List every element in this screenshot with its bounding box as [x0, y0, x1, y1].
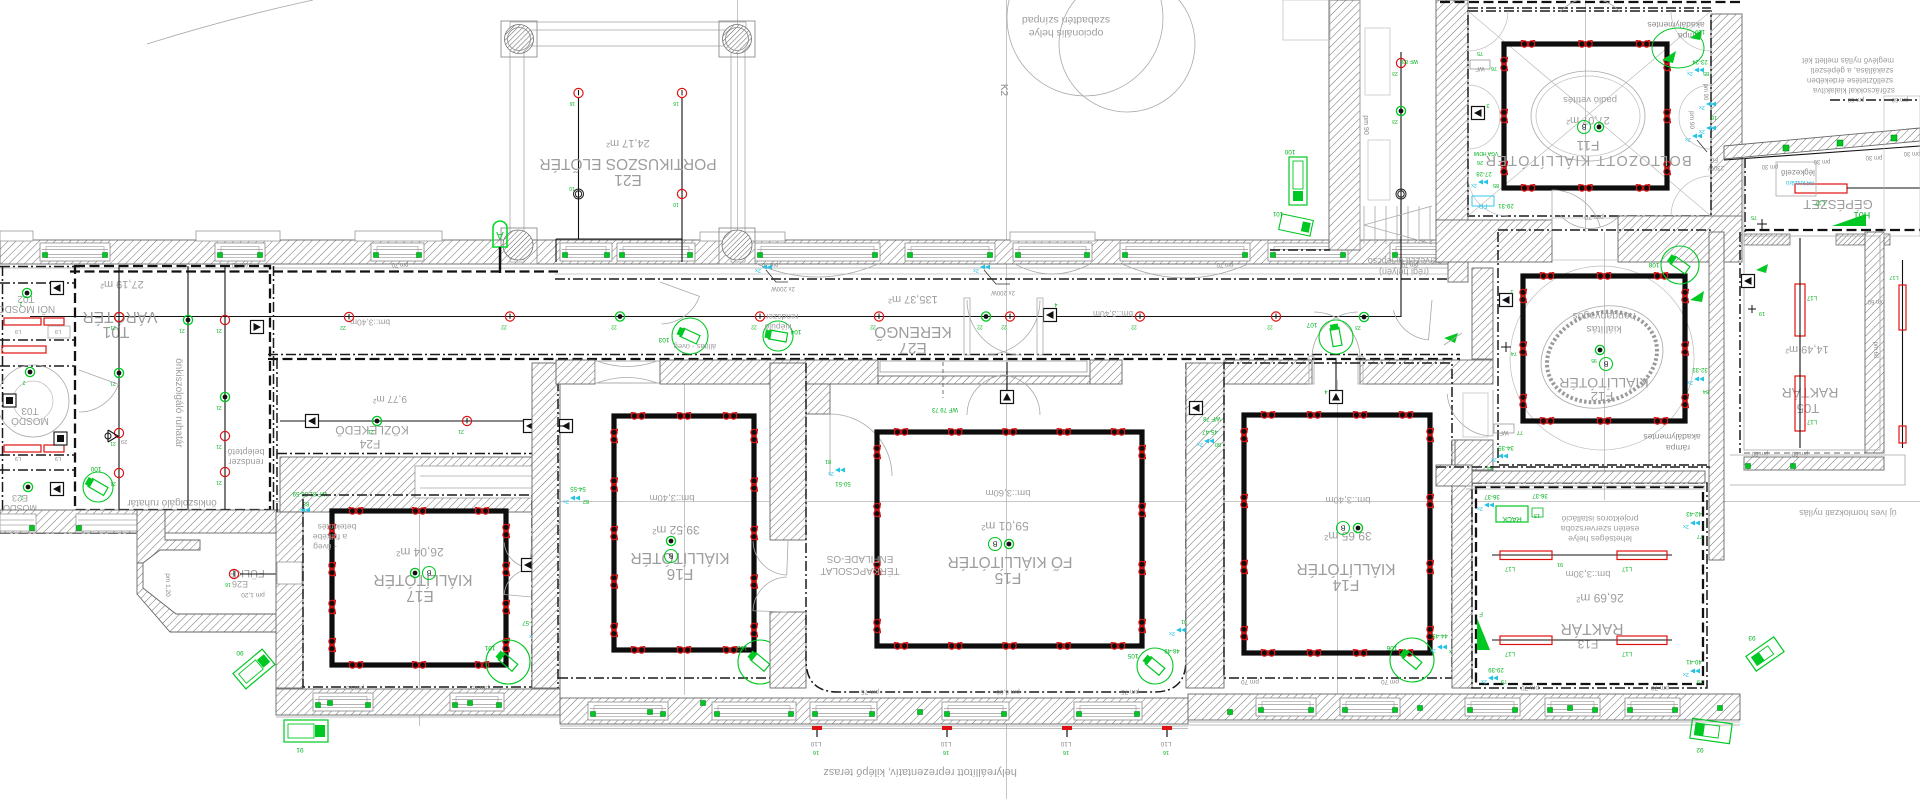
svg-text:L17: L17	[1806, 418, 1817, 424]
svg-text:betekintés: betekintés	[318, 522, 357, 532]
svg-text:RAKTÁR: RAKTÁR	[1782, 385, 1839, 401]
svg-text:26,69 m²: 26,69 m²	[1576, 591, 1623, 605]
svg-text:F11: F11	[1576, 138, 1599, 154]
svg-text:pm 6,00: pm 6,00	[996, 688, 1020, 695]
svg-text:pm 70: pm 70	[1521, 684, 1539, 691]
svg-text:100: 100	[90, 465, 101, 472]
svg-text:21: 21	[179, 327, 185, 333]
svg-text:2x: 2x	[1699, 104, 1705, 110]
svg-text:16: 16	[673, 100, 679, 106]
svg-text:pm 70: pm 70	[391, 261, 408, 267]
svg-text:pm 30: pm 30	[1865, 154, 1882, 160]
svg-text:2x: 2x	[563, 498, 569, 504]
svg-text:95: 95	[1591, 357, 1597, 363]
svg-text:39,52 m²: 39,52 m²	[652, 523, 699, 537]
svg-text:WF 79 73: WF 79 73	[931, 406, 958, 412]
svg-text:WF: WF	[1475, 65, 1485, 71]
svg-text:10: 10	[673, 201, 679, 207]
svg-text:pm 1,20: pm 1,20	[164, 573, 171, 597]
svg-text:L10: L10	[810, 740, 821, 747]
svg-text:36-37: 36-37	[1484, 493, 1500, 499]
svg-text:79: 79	[1697, 678, 1703, 684]
svg-text:40-41: 40-41	[1686, 658, 1702, 664]
svg-text:2x: 2x	[1683, 523, 1689, 529]
svg-text:BOLTOZOTT KIÁLLÍTÓTÉR: BOLTOZOTT KIÁLLÍTÓTÉR	[1484, 152, 1691, 169]
svg-text:L17: L17	[1814, 199, 1825, 205]
svg-text:74: 74	[1511, 350, 1517, 356]
svg-text:22: 22	[340, 324, 346, 330]
svg-text:E27: E27	[899, 339, 927, 356]
svg-text:2x: 2x	[1477, 505, 1483, 511]
svg-text:29: 29	[121, 438, 127, 444]
svg-text:L9: L9	[55, 328, 61, 334]
svg-text:L17: L17	[1504, 565, 1515, 571]
svg-text:F16: F16	[667, 565, 694, 582]
svg-text:2x: 2x	[1430, 647, 1436, 653]
svg-text:23: 23	[1392, 118, 1398, 124]
svg-text:szőrácsokkal kialakítva: szőrácsokkal kialakítva	[1813, 86, 1895, 95]
svg-text:pm 70: pm 70	[1216, 261, 1233, 267]
svg-text:- üveg: - üveg	[313, 542, 337, 552]
svg-text:18: 18	[1711, 114, 1717, 120]
svg-text:76: 76	[1491, 65, 1497, 71]
svg-text:93: 93	[1748, 634, 1756, 641]
svg-text:26: 26	[1477, 159, 1483, 165]
svg-text:K2: K2	[998, 84, 1009, 97]
svg-text:kiállítás: kiállítás	[1586, 323, 1621, 335]
svg-text:101: 101	[484, 644, 495, 651]
svg-text:padló vetítés: padló vetítés	[1563, 94, 1617, 105]
svg-text:F24: F24	[359, 437, 380, 451]
svg-text:WF: WF	[1499, 429, 1509, 435]
svg-text:pm 30: pm 30	[1903, 150, 1920, 156]
svg-text:légkezelő: légkezelő	[1781, 168, 1815, 177]
svg-text:L10: L10	[1060, 740, 1071, 747]
svg-text:opcionális helye: opcionális helye	[1028, 27, 1103, 39]
svg-text:2x: 2x	[1687, 70, 1693, 76]
svg-text:16: 16	[1163, 749, 1169, 755]
svg-text:32-33: 32-33	[1692, 366, 1708, 372]
svg-text:NŐI MOSDÓ: NŐI MOSDÓ	[0, 303, 55, 317]
svg-text:2x 200W: 2x 200W	[991, 289, 1015, 295]
svg-text:23-24: 23-24	[1692, 58, 1708, 64]
svg-text:E26: E26	[232, 579, 248, 589]
svg-text:85: 85	[1493, 182, 1499, 188]
svg-text:B: B	[1581, 123, 1586, 130]
svg-text:75: 75	[1751, 214, 1757, 220]
svg-text:2x: 2x	[1683, 671, 1689, 677]
svg-text:E17: E17	[406, 587, 434, 604]
svg-text:4: 4	[1054, 301, 1057, 307]
svg-text:22: 22	[977, 324, 983, 330]
svg-text:102: 102	[736, 644, 747, 651]
svg-text:PORTIKUSZOS ELŐTÉR: PORTIKUSZOS ELŐTÉR	[539, 155, 716, 172]
svg-text:pm 90: pm 90	[1362, 115, 1369, 135]
svg-text:9,77 m²: 9,77 m²	[372, 393, 407, 404]
svg-text:26,04 m²: 26,04 m²	[396, 545, 443, 559]
svg-text:90: 90	[236, 649, 244, 656]
svg-text:pm 30: pm 30	[1813, 158, 1830, 164]
svg-text:2x: 2x	[1169, 630, 1175, 636]
svg-text:42-43: 42-43	[1686, 510, 1702, 516]
svg-text:KIÁLLÍTÓTÉR: KIÁLLÍTÓTÉR	[630, 549, 729, 566]
svg-text:F: F	[1479, 610, 1483, 616]
svg-text:a fülkébe: a fülkébe	[312, 532, 347, 542]
svg-text:pm 60: pm 60	[1847, 96, 1864, 102]
svg-text:VGA HDMI: VGA HDMI	[1474, 150, 1498, 156]
svg-text:16: 16	[1063, 749, 1069, 755]
svg-text:L10: L10	[940, 740, 951, 747]
svg-text:KIÁLLÍTÓTÉR: KIÁLLÍTÓTÉR	[1559, 375, 1648, 391]
svg-text:pm 75: pm 75	[1121, 688, 1139, 695]
svg-text:rendszer: rendszer	[228, 457, 263, 467]
svg-text:230W: 230W	[1708, 164, 1724, 170]
svg-text:pm 30: pm 30	[1761, 163, 1778, 169]
svg-text:107: 107	[1306, 321, 1317, 328]
svg-text:2x 200W: 2x 200W	[771, 285, 795, 291]
svg-text:önkiszolgáló ruhatár: önkiszolgáló ruhatár	[127, 497, 217, 508]
svg-text:22: 22	[870, 324, 876, 330]
svg-text:esetén szerverszoba: esetén szerverszoba	[1561, 524, 1640, 534]
svg-text:VÁRÓTÉR: VÁRÓTÉR	[83, 308, 158, 325]
svg-text:81: 81	[825, 458, 831, 464]
svg-text:54-55: 54-55	[570, 485, 586, 491]
svg-text:2: 2	[19, 300, 22, 306]
svg-text:22: 22	[1131, 324, 1137, 330]
svg-text:F14: F14	[1332, 576, 1359, 593]
svg-text:82: 82	[583, 498, 589, 504]
svg-text:16: 16	[570, 100, 576, 106]
svg-text:2: 2	[20, 494, 23, 500]
svg-text:21: 21	[458, 428, 464, 434]
svg-text:T03: T03	[21, 405, 39, 416]
svg-text:23: 23	[1392, 70, 1398, 76]
svg-text:45-47: 45-47	[1202, 428, 1218, 434]
svg-text:WF 83: WF 83	[1402, 58, 1418, 64]
svg-text:22: 22	[1267, 324, 1273, 330]
svg-text:22: 22	[611, 324, 617, 330]
svg-text:2x: 2x	[1471, 182, 1477, 188]
svg-text:FR: FR	[1478, 202, 1487, 209]
svg-text:84: 84	[1703, 388, 1709, 394]
svg-text:135,37 m²: 135,37 m²	[888, 293, 938, 305]
svg-text:kiépülő: kiépülő	[764, 322, 791, 332]
svg-text:27,19 m²: 27,19 m²	[100, 278, 144, 290]
svg-text:34-35: 34-35	[1498, 444, 1514, 450]
svg-text:KIÁLLÍTÓTÉR: KIÁLLÍTÓTÉR	[1296, 560, 1395, 577]
svg-text:pm 90: pm 90	[1702, 84, 1708, 101]
svg-text:F12: F12	[1591, 389, 1613, 404]
svg-text:59,01 m²: 59,01 m²	[981, 519, 1028, 533]
svg-text:A: A	[496, 229, 504, 241]
svg-text:10: 10	[569, 185, 575, 191]
svg-text:bm::3,40m: bm::3,40m	[1093, 309, 1133, 319]
svg-text:91: 91	[296, 746, 304, 753]
svg-text:KERENGŐ: KERENGŐ	[874, 323, 952, 340]
svg-text:L17: L17	[1621, 650, 1632, 656]
svg-text:77: 77	[1517, 429, 1523, 435]
svg-text:ENFILADE-OS: ENFILADE-OS	[826, 553, 893, 564]
svg-text:L17: L17	[1889, 274, 1898, 280]
svg-text:L17: L17	[1806, 294, 1817, 300]
svg-text:L9: L9	[55, 455, 61, 461]
svg-text:helyreállított reprezentatív,: helyreállított reprezentatív, kilépő ter…	[823, 766, 1017, 778]
svg-text:B: B	[1340, 524, 1345, 531]
svg-text:21: 21	[216, 327, 222, 333]
svg-text:16: 16	[943, 749, 949, 755]
svg-text:pm 60: pm 60	[1867, 298, 1884, 304]
svg-text:F15: F15	[995, 569, 1022, 586]
svg-text:79: 79	[1501, 678, 1507, 684]
svg-text:(régi helyén): (régi helyén)	[1379, 267, 1429, 277]
svg-text:WF 78: WF 78	[1203, 415, 1221, 421]
svg-text:2x: 2x	[1491, 456, 1497, 462]
svg-text:22: 22	[1001, 324, 1007, 330]
svg-text:RACK: RACK	[1502, 515, 1522, 522]
svg-text:39,65 m²: 39,65 m²	[1324, 529, 1371, 543]
svg-text:pm 70: pm 70	[1651, 684, 1669, 691]
svg-text:44-45: 44-45	[1432, 632, 1448, 638]
svg-text:szabadtéri színpad: szabadtéri színpad	[1022, 14, 1110, 26]
svg-text:21: 21	[368, 428, 374, 434]
svg-text:16: 16	[813, 749, 819, 755]
svg-text:2x: 2x	[828, 470, 834, 476]
svg-text:2x: 2x	[755, 267, 761, 273]
svg-text:1: 1	[1510, 288, 1513, 294]
svg-text:92: 92	[1696, 746, 1704, 753]
svg-text:L17: L17	[1621, 565, 1632, 571]
svg-text:pm 70: pm 70	[1241, 678, 1259, 685]
svg-text:pm 70: pm 70	[1381, 678, 1399, 685]
svg-text:109: 109	[1694, 28, 1705, 34]
svg-text:L10: L10	[1160, 740, 1171, 747]
svg-text:27-28: 27-28	[1476, 170, 1492, 176]
svg-text:2x: 2x	[1481, 678, 1487, 684]
svg-text:2x: 2x	[1197, 441, 1203, 447]
svg-text:77: 77	[1697, 533, 1703, 539]
svg-text:2x: 2x	[1685, 136, 1691, 142]
svg-text:beléptető: beléptető	[227, 447, 264, 457]
svg-text:L9: L9	[15, 328, 21, 334]
svg-text:pm 90: pm 90	[1688, 111, 1695, 129]
svg-text:2: 2	[22, 379, 25, 385]
svg-text:lehetséges helye: lehetséges helye	[1568, 534, 1632, 544]
svg-text:75: 75	[1477, 50, 1483, 56]
svg-text:22: 22	[501, 324, 507, 330]
svg-text:rámpa: rámpa	[1666, 443, 1690, 453]
svg-text:önkiszolgáló ruhatár: önkiszolgáló ruhatár	[173, 358, 184, 448]
svg-text:akadálymentes: akadálymentes	[1643, 432, 1700, 442]
svg-text:100: 100	[1284, 148, 1295, 155]
svg-text:105: 105	[1127, 652, 1138, 659]
svg-text:bm::3,60m: bm::3,60m	[985, 487, 1030, 498]
svg-text:B: B	[992, 540, 997, 547]
svg-text:48-49: 48-49	[1164, 647, 1180, 653]
svg-text:RAKTÁR: RAKTÁR	[1561, 620, 1624, 637]
svg-text:22: 22	[751, 324, 757, 330]
svg-text:bm::3,40m: bm::3,40m	[1325, 494, 1370, 505]
svg-text:pm 1,20: pm 1,20	[241, 591, 265, 598]
svg-text:19: 19	[1759, 310, 1765, 316]
svg-text:16: 16	[225, 581, 231, 587]
svg-text:23: 23	[1355, 324, 1361, 330]
svg-text:108: 108	[1648, 261, 1659, 268]
svg-text:GÉPÉSZET: GÉPÉSZET	[1803, 197, 1872, 212]
svg-text:MOSDÓ: MOSDÓ	[11, 415, 49, 428]
svg-text:F13: F13	[1577, 637, 1598, 651]
svg-text:bm::3,40m: bm::3,40m	[649, 492, 694, 503]
svg-text:pm 70: pm 70	[1584, 213, 1604, 220]
svg-text:101: 101	[1272, 210, 1283, 216]
svg-text:2x: 2x	[1687, 379, 1693, 385]
svg-text:21: 21	[216, 443, 222, 449]
svg-text:B: B	[668, 552, 673, 559]
svg-text:29-39: 29-39	[1488, 666, 1504, 672]
svg-text:FŐ KIÁLLÍTÓTÉR: FŐ KIÁLLÍTÓTÉR	[948, 553, 1073, 570]
svg-text:103: 103	[658, 336, 669, 343]
svg-text:új íves homlokzati nyílás: új íves homlokzati nyílás	[1799, 508, 1897, 518]
svg-text:14,49 m²: 14,49 m²	[1785, 343, 1829, 355]
svg-text:TÉRKAPCSOLAT: TÉRKAPCSOLAT	[820, 565, 899, 578]
svg-text:FC: FC	[1709, 156, 1718, 162]
svg-text:meglévő nyílás mellett két: meglévő nyílás mellett két	[1801, 56, 1894, 65]
svg-text:rendszer: rendszer	[765, 312, 798, 322]
svg-text:106: 106	[1386, 644, 1397, 651]
svg-text:szakállása, a gépészeti: szakállása, a gépészeti	[1810, 66, 1893, 75]
svg-text:pm 75: pm 75	[861, 688, 879, 695]
svg-text:E21: E21	[614, 171, 642, 188]
svg-text:2x: 2x	[1699, 128, 1705, 134]
svg-text:bm::3,40m: bm::3,40m	[350, 318, 390, 328]
svg-text:21: 21	[216, 404, 222, 410]
svg-text:21: 21	[216, 479, 222, 485]
svg-text:E23: E23	[12, 493, 28, 503]
svg-text:A4 kiszárú: A4 kiszárú	[1786, 179, 1814, 185]
svg-text:projektoros istalláció: projektoros istalláció	[1561, 514, 1638, 524]
svg-text:50-51: 50-51	[835, 480, 851, 486]
svg-text:L17: L17	[1504, 650, 1515, 656]
svg-text:4: 4	[1324, 388, 1327, 394]
svg-text:FÜLKE: FÜLKE	[229, 567, 264, 579]
svg-text:állítás - üveg: állítás - üveg	[674, 342, 717, 351]
svg-text:hanganyagos: hanganyagos	[1572, 310, 1635, 322]
svg-text:L9: L9	[15, 455, 21, 461]
svg-text:21: 21	[110, 324, 116, 330]
svg-text:B: B	[426, 569, 431, 576]
svg-text:29-31: 29-31	[1498, 202, 1514, 208]
svg-text:bm::3,30m: bm::3,30m	[1565, 568, 1610, 579]
svg-text:B: B	[1603, 360, 1608, 367]
svg-text:2x: 2x	[973, 267, 979, 273]
svg-text:pm 60: pm 60	[1891, 96, 1908, 102]
svg-text:91: 91	[1557, 561, 1563, 567]
svg-text:80: 80	[1215, 441, 1221, 447]
svg-text:36-37: 36-37	[1532, 492, 1548, 498]
svg-text:24,17 m²: 24,17 m²	[606, 137, 650, 149]
svg-text:tervezett új lépcső: tervezett új lépcső	[1368, 256, 1441, 266]
svg-text:pm 60: pm 60	[1872, 342, 1878, 359]
svg-text:3: 3	[1486, 102, 1489, 108]
svg-text:85: 85	[1703, 70, 1709, 76]
svg-text:szellőztetése érdekében: szellőztetése érdekében	[1807, 76, 1893, 85]
